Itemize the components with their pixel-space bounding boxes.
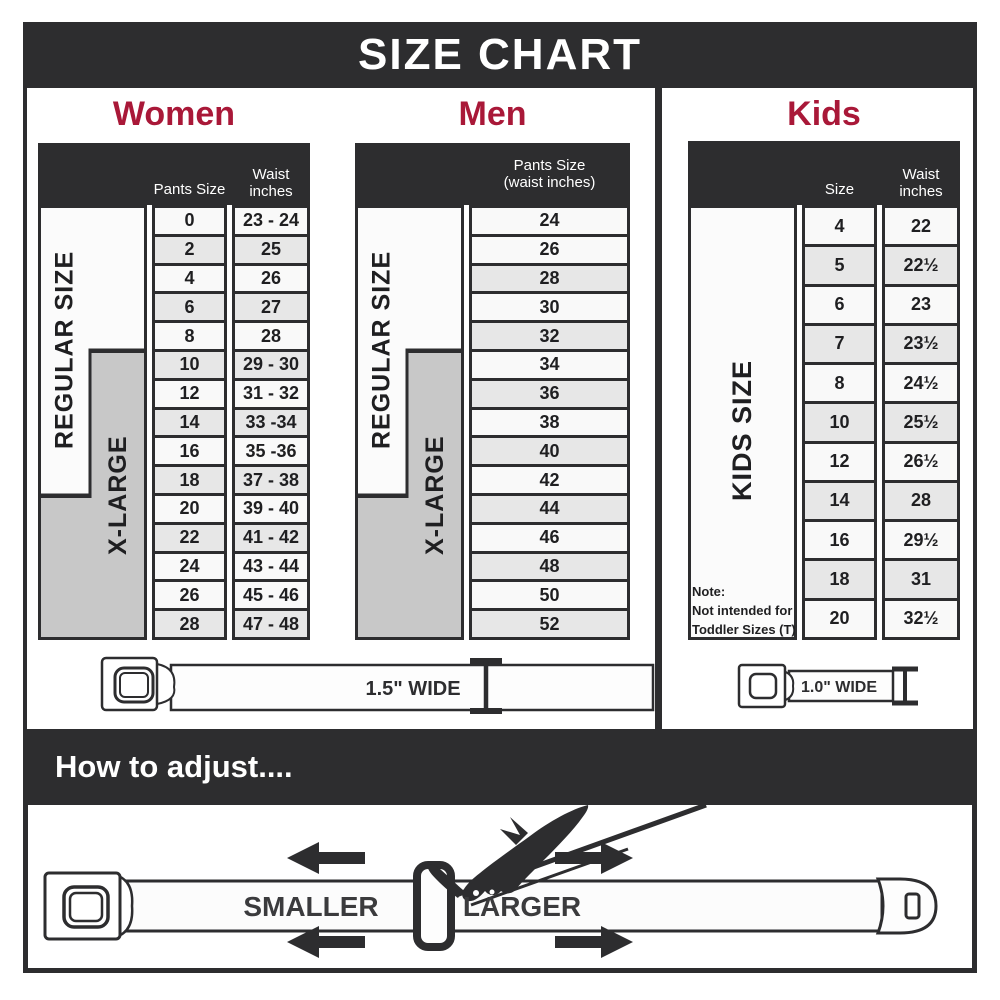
size-cell: 43 - 44 [232, 551, 310, 583]
size-cell: 26 [469, 234, 630, 266]
size-cell: 14 [802, 480, 877, 522]
size-cell: 34 [469, 349, 630, 381]
size-cell: 23 - 24 [232, 205, 310, 237]
size-cell: 25 [232, 234, 310, 266]
size-cell: 48 [469, 551, 630, 583]
women-regular-size-label: REGULAR SIZE [38, 205, 92, 495]
women-waist-column: 23 - 242526272829 - 3031 - 3233 -3435 -3… [232, 205, 310, 640]
size-cell: 41 - 42 [232, 522, 310, 554]
size-cell: 22 [152, 522, 227, 554]
men-xlarge-label: X-LARGE [407, 350, 464, 640]
size-cell: 40 [469, 435, 630, 467]
kids-section-title: Kids [688, 94, 960, 134]
adult-belt-illustration: 1.5" WIDE [95, 648, 655, 718]
size-cell: 2 [152, 234, 227, 266]
kids-waist-col-header: Waist inches [882, 166, 960, 200]
size-cell: 47 - 48 [232, 608, 310, 640]
kids-table-header: Size Waist inches [688, 141, 960, 205]
size-cell: 31 [882, 558, 960, 600]
size-cell: 6 [802, 284, 877, 326]
kids-waist-column: 2222½2323½24½25½26½2829½3132½ [882, 205, 960, 640]
size-cell: 29½ [882, 519, 960, 561]
size-cell: 44 [469, 493, 630, 525]
size-cell: 10 [802, 401, 877, 443]
women-waist-col-header: Waist inches [232, 166, 310, 200]
women-pants-size-col-header: Pants Size [152, 181, 227, 198]
size-cell: 35 -36 [232, 435, 310, 467]
size-cell: 8 [802, 362, 877, 404]
size-cell: 23½ [882, 323, 960, 365]
size-cell: 32½ [882, 598, 960, 640]
size-cell: 12 [152, 378, 227, 410]
size-cell: 22 [882, 205, 960, 247]
women-xlarge-label: X-LARGE [90, 350, 147, 640]
size-cell: 18 [802, 558, 877, 600]
size-cell: 28 [882, 480, 960, 522]
men-table-header: Pants Size (waist inches) [355, 143, 630, 205]
size-cell: 4 [152, 263, 227, 295]
size-cell: 42 [469, 464, 630, 496]
size-cell: 46 [469, 522, 630, 554]
adjust-title: How to adjust.... [23, 749, 293, 785]
size-cell: 29 - 30 [232, 349, 310, 381]
size-cell: 18 [152, 464, 227, 496]
size-cell: 28 [232, 320, 310, 352]
men-regular-size-label: REGULAR SIZE [355, 205, 409, 495]
kids-size-label: KIDS SIZE [688, 250, 797, 610]
kids-size-note: Note: Not intended for Toddler Sizes (T) [692, 582, 796, 639]
panel-divider [655, 88, 662, 733]
size-cell: 14 [152, 407, 227, 439]
smaller-label: SMALLER [243, 891, 378, 922]
size-cell: 52 [469, 608, 630, 640]
larger-label: LARGER [463, 891, 581, 922]
size-cell: 16 [802, 519, 877, 561]
size-cell: 33 -34 [232, 407, 310, 439]
men-size-column: 242628303234363840424446485052 [469, 205, 630, 640]
size-cell: 20 [152, 493, 227, 525]
belt-width-label: 1.0" WIDE [801, 679, 877, 696]
size-cell: 31 - 32 [232, 378, 310, 410]
size-cell: 32 [469, 320, 630, 352]
size-cell: 25½ [882, 401, 960, 443]
size-cell: 10 [152, 349, 227, 381]
women-size-column: 0246810121416182022242628 [152, 205, 227, 640]
size-cell: 38 [469, 407, 630, 439]
size-cell: 4 [802, 205, 877, 247]
size-cell: 27 [232, 291, 310, 323]
adjust-belt-illustration: SMALLER LARGER [28, 805, 972, 968]
size-cell: 16 [152, 435, 227, 467]
size-cell: 28 [469, 263, 630, 295]
men-section-title: Men [355, 94, 630, 134]
belt-buckle-icon [45, 873, 132, 939]
size-cell: 28 [152, 608, 227, 640]
size-cell: 45 - 46 [232, 579, 310, 611]
size-cell: 7 [802, 323, 877, 365]
width-measure-icon [892, 669, 918, 703]
belt-width-label: 1.5" WIDE [365, 678, 460, 700]
women-table-header: Pants Size Waist inches [38, 143, 310, 205]
size-cell: 0 [152, 205, 227, 237]
page-title: SIZE CHART [358, 30, 642, 80]
size-cell: 12 [802, 441, 877, 483]
kids-belt-illustration: 1.0" WIDE [735, 662, 925, 710]
size-cell: 20 [802, 598, 877, 640]
adjust-header: How to adjust.... [23, 733, 977, 800]
size-chart-header: SIZE CHART [23, 22, 977, 88]
belt-buckle-icon [739, 665, 785, 707]
size-cell: 26 [232, 263, 310, 295]
size-cell: 50 [469, 579, 630, 611]
size-cell: 24 [152, 551, 227, 583]
size-cell: 24½ [882, 362, 960, 404]
size-cell: 8 [152, 320, 227, 352]
size-cell: 30 [469, 291, 630, 323]
men-pants-size-col-header: Pants Size (waist inches) [469, 157, 630, 191]
size-cell: 26½ [882, 441, 960, 483]
size-cell: 26 [152, 579, 227, 611]
kids-size-col-header: Size [802, 181, 877, 198]
size-cell: 24 [469, 205, 630, 237]
size-cell: 22½ [882, 244, 960, 286]
size-cell: 5 [802, 244, 877, 286]
women-section-title: Women [38, 94, 310, 134]
arrow-left-icon [287, 842, 365, 874]
size-cell: 37 - 38 [232, 464, 310, 496]
kids-size-column: 45678101214161820 [802, 205, 877, 640]
size-cell: 39 - 40 [232, 493, 310, 525]
page-frame: SIZE CHART Women Men Kids Pants Size Wai… [0, 0, 1000, 1000]
size-cell: 23 [882, 284, 960, 326]
size-cell: 36 [469, 378, 630, 410]
size-cell: 6 [152, 291, 227, 323]
